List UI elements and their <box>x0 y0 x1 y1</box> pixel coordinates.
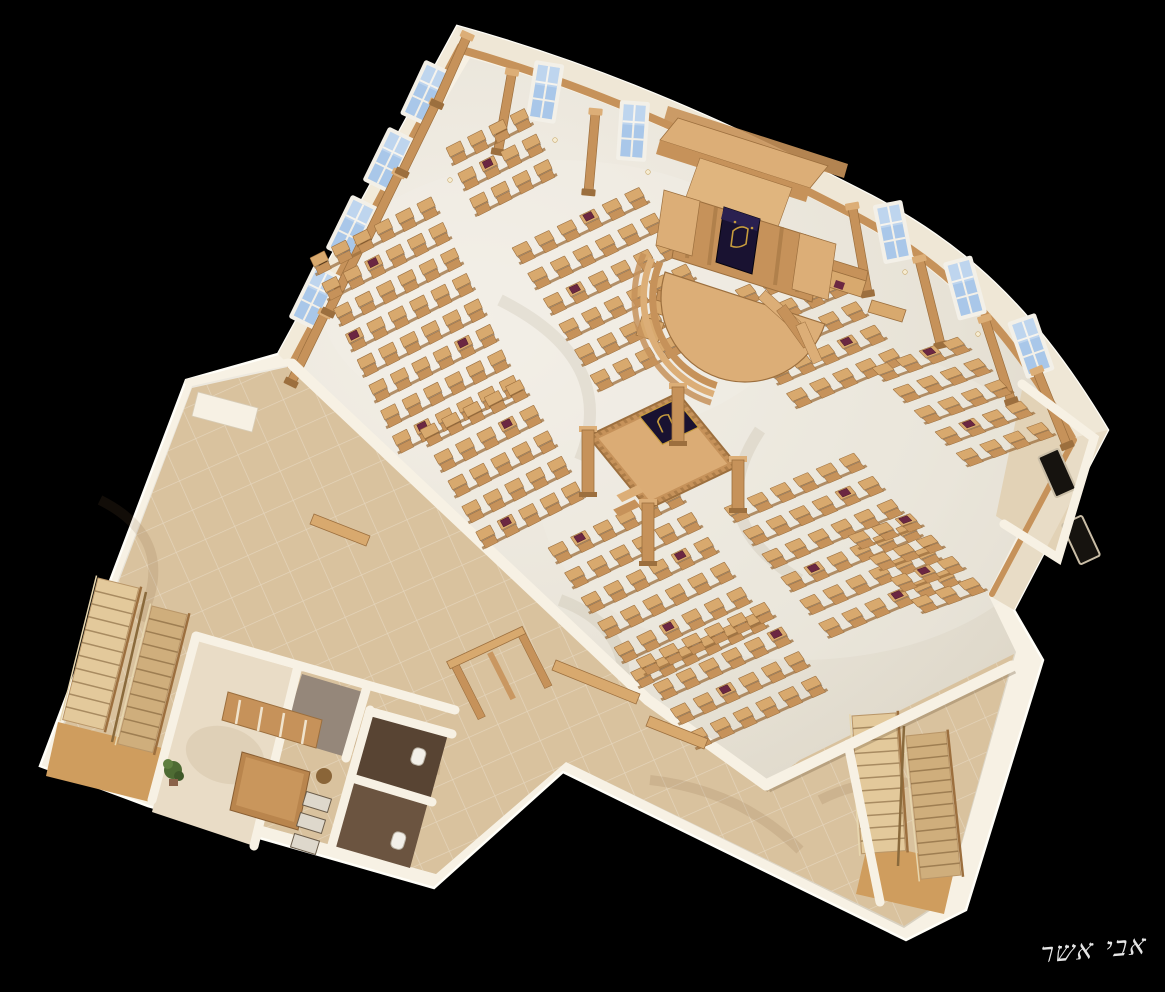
gold-ornament <box>751 227 754 230</box>
rendering-stage: אבי אשר <box>0 0 1165 992</box>
office-chair <box>316 768 332 784</box>
pilaster-capital <box>588 108 603 116</box>
plant-pot <box>169 779 178 786</box>
ark-right-wing <box>792 233 836 300</box>
gold-ornament <box>734 221 737 224</box>
ark-left-wing <box>656 190 700 256</box>
wall-sconce <box>553 138 558 143</box>
wall-sconce <box>448 178 453 183</box>
wall-sconce <box>976 332 981 337</box>
pilaster-base <box>581 188 596 196</box>
wall-sconce <box>646 170 651 175</box>
wall-sconce <box>903 270 908 275</box>
synagogue-floorplan-rendering <box>0 0 1165 992</box>
plant-leaves <box>163 759 173 769</box>
sanctuary-window <box>616 100 650 162</box>
